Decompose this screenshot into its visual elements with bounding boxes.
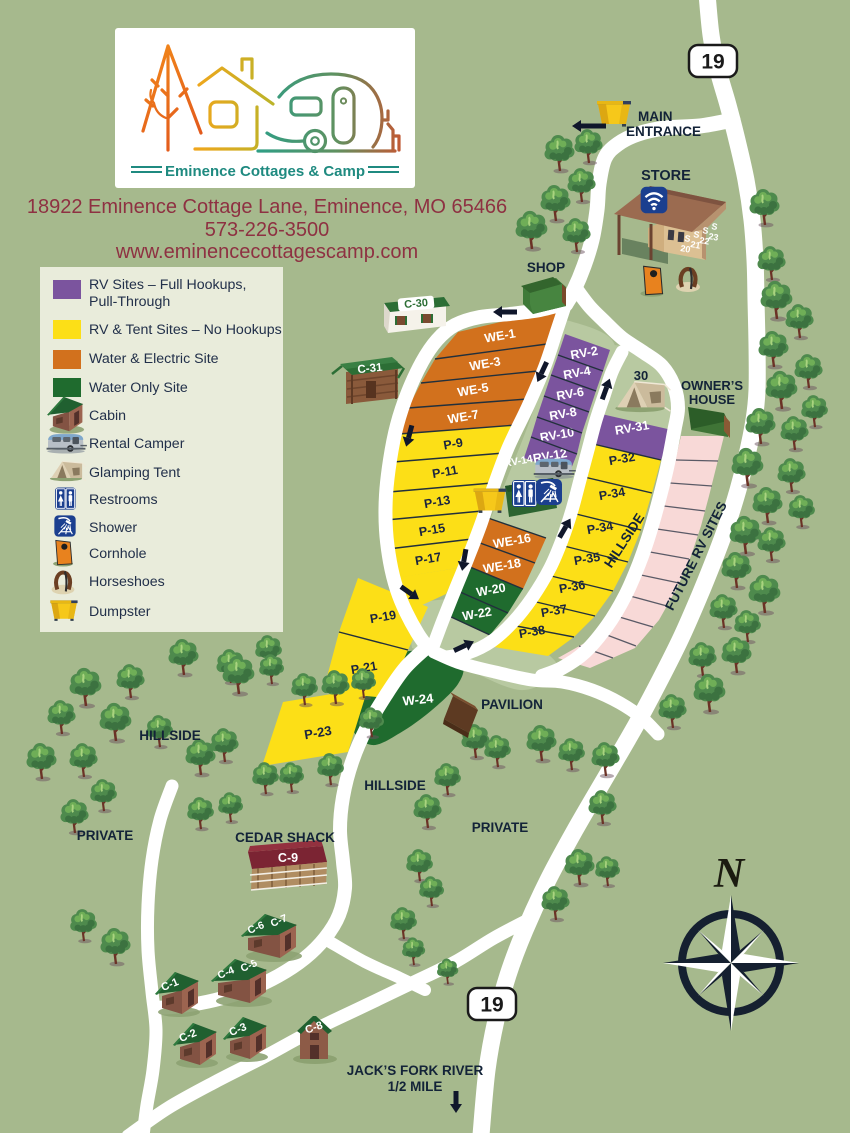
svg-text:JACK’S FORK RIVER: JACK’S FORK RIVER	[347, 1063, 484, 1078]
svg-text:MAIN: MAIN	[638, 109, 673, 124]
svg-text:PAVILION: PAVILION	[481, 697, 543, 712]
svg-text:19: 19	[701, 51, 724, 74]
svg-text:C-30: C-30	[404, 297, 429, 311]
svg-text:Pull-Through: Pull-Through	[89, 294, 170, 310]
svg-text:HOUSE: HOUSE	[689, 392, 736, 407]
svg-text:PRIVATE: PRIVATE	[77, 828, 134, 843]
svg-text:Rental Camper: Rental Camper	[89, 436, 185, 452]
svg-text:19: 19	[480, 994, 503, 1017]
svg-text:Glamping Tent: Glamping Tent	[89, 465, 180, 481]
svg-text:573-226-3500: 573-226-3500	[205, 219, 330, 241]
svg-text:1/2 MILE: 1/2 MILE	[388, 1079, 443, 1094]
svg-text:23: 23	[708, 231, 720, 243]
svg-text:HILLSIDE: HILLSIDE	[139, 728, 201, 743]
svg-text:18922 Eminence Cottage Lane, E: 18922 Eminence Cottage Lane, Eminence, M…	[27, 196, 507, 218]
svg-text:RV & Tent Sites – No Hookups: RV & Tent Sites – No Hookups	[89, 322, 282, 338]
svg-text:www.eminencecottagescamp.com: www.eminencecottagescamp.com	[115, 241, 418, 263]
svg-text:N: N	[713, 851, 746, 897]
svg-text:OWNER’S: OWNER’S	[681, 378, 743, 393]
svg-text:HILLSIDE: HILLSIDE	[364, 778, 426, 793]
svg-text:SHOP: SHOP	[527, 260, 565, 275]
svg-text:C-9: C-9	[278, 851, 298, 865]
svg-text:Shower: Shower	[89, 520, 137, 536]
svg-text:STORE: STORE	[641, 168, 691, 184]
svg-text:CEDAR SHACK: CEDAR SHACK	[235, 830, 335, 845]
svg-text:PRIVATE: PRIVATE	[472, 820, 529, 835]
svg-text:Eminence Cottages & Camp: Eminence Cottages & Camp	[165, 163, 365, 180]
svg-text:Cabin: Cabin	[89, 408, 126, 424]
svg-text:Restrooms: Restrooms	[89, 492, 158, 508]
svg-text:Cornhole: Cornhole	[89, 546, 147, 562]
svg-text:RV Sites – Full Hookups,: RV Sites – Full Hookups,	[89, 277, 246, 293]
svg-text:30: 30	[634, 368, 648, 383]
svg-text:Water Only Site: Water Only Site	[89, 380, 188, 396]
svg-text:Dumpster: Dumpster	[89, 604, 151, 620]
svg-text:Horseshoes: Horseshoes	[89, 574, 165, 590]
svg-text:ENTRANCE: ENTRANCE	[626, 124, 701, 139]
svg-text:Water & Electric Site: Water & Electric Site	[89, 351, 219, 367]
